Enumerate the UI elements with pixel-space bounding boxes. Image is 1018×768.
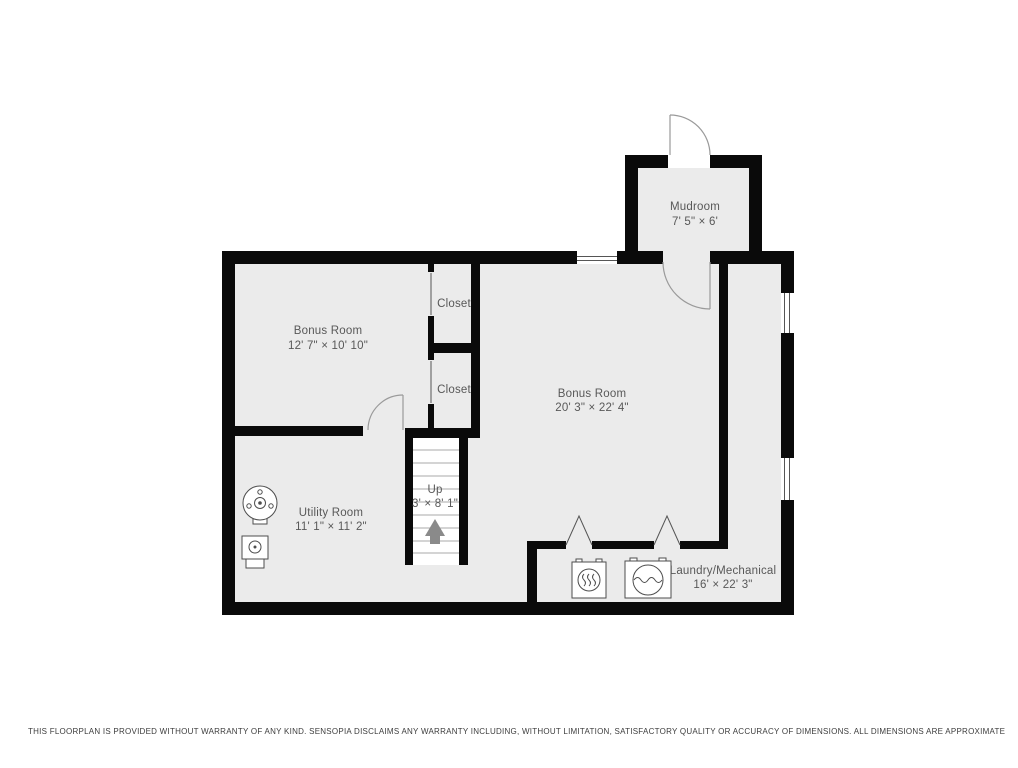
bonus-main-label: Bonus Room	[558, 388, 626, 400]
closet-top-label: Closet	[437, 298, 471, 310]
mudroom-wall-right	[749, 155, 762, 264]
wall-right-c	[781, 500, 794, 615]
stair-right-wall	[459, 438, 468, 565]
disclaimer-text: THIS FLOORPLAN IS PROVIDED WITHOUT WARRA…	[28, 727, 1005, 736]
mudroom-dims: 7' 5" × 6'	[672, 216, 718, 228]
closet-wall-stub-bottom	[428, 404, 434, 428]
window-top	[577, 257, 617, 261]
mudroom-wall-top-right	[710, 155, 762, 168]
wall-top-mid	[617, 251, 663, 264]
mudroom-entry-door	[670, 115, 710, 155]
bonus-left-label: Bonus Room	[294, 325, 362, 337]
dryer-icon	[572, 559, 606, 598]
bonus-main-dims: 20' 3" × 22' 4"	[555, 402, 628, 414]
wall-bottom	[222, 602, 794, 615]
laundry-strip-wall	[719, 264, 728, 549]
floorplan-canvas: Mudroom 7' 5" × 6' Bonus Room 12' 7" × 1…	[0, 0, 1018, 768]
stairs-dims: 3' × 8' 1"	[412, 498, 458, 510]
laundry-dims: 16' × 22' 3"	[693, 579, 752, 591]
wall-right-b	[781, 333, 794, 458]
utility-divider-wall	[235, 426, 363, 436]
laundry-left-wall	[527, 541, 537, 602]
mudroom-wall-top-left	[625, 155, 668, 168]
laundry-label: Laundry/Mechanical	[670, 565, 777, 577]
wall-top-left	[222, 251, 577, 264]
mudroom-wall-left	[625, 155, 638, 264]
window-right-upper	[785, 293, 790, 333]
bonus-left-dims: 12' 7" × 10' 10"	[288, 340, 368, 352]
floorplan-page: Mudroom 7' 5" × 6' Bonus Room 12' 7" × 1…	[0, 0, 1018, 768]
furnace-icon	[242, 536, 268, 568]
stair-top-wall	[405, 428, 480, 438]
window-right-lower	[785, 458, 790, 500]
closet-right-wall	[471, 264, 480, 438]
utility-label: Utility Room	[299, 507, 363, 519]
wall-left	[222, 251, 235, 615]
laundry-wall-b	[592, 541, 654, 549]
washer-icon	[625, 558, 671, 598]
closet-bottom-label: Closet	[437, 384, 471, 396]
stairs-up-label: Up	[427, 484, 442, 496]
mudroom-label: Mudroom	[670, 201, 720, 213]
closet-wall-stub-top	[428, 264, 434, 272]
utility-dims: 11' 1" × 11' 2"	[295, 521, 367, 533]
floor-fills	[235, 168, 781, 602]
wall-right-a	[781, 251, 794, 293]
closet-wall-mid	[428, 316, 434, 360]
